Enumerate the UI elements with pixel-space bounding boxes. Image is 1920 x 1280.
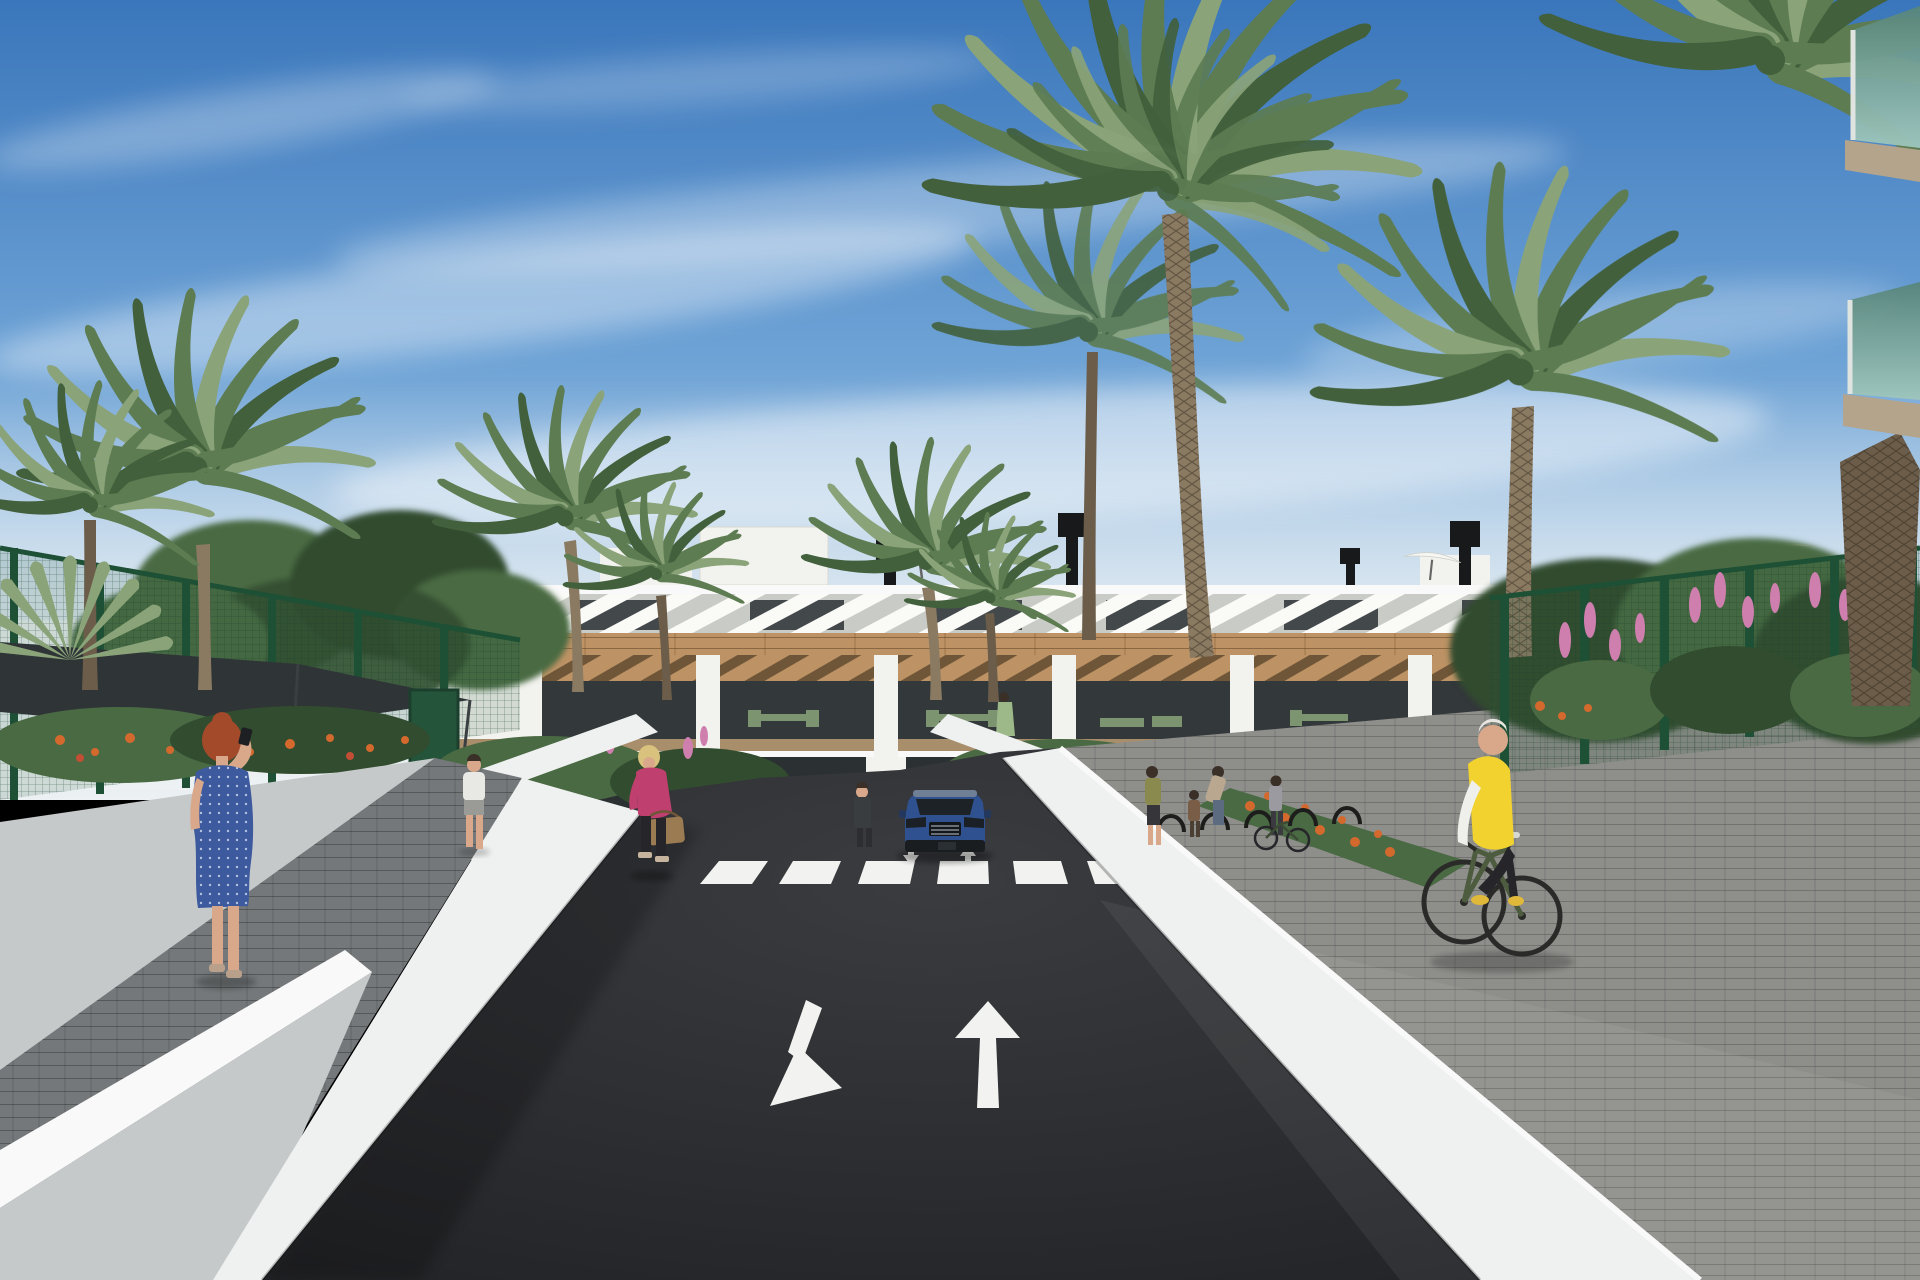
palm-trunk-right-edge xyxy=(1840,432,1920,706)
car-windshield xyxy=(916,799,974,815)
blue-suv xyxy=(897,790,993,863)
car-plate xyxy=(938,842,956,850)
car-roof xyxy=(913,790,977,797)
yellow-vest xyxy=(1468,756,1514,849)
balcony-unit-lower xyxy=(1843,282,1920,438)
render-canvas xyxy=(0,0,1920,1280)
balcony-unit-upper xyxy=(1845,6,1920,182)
scene-render xyxy=(0,0,1920,1280)
